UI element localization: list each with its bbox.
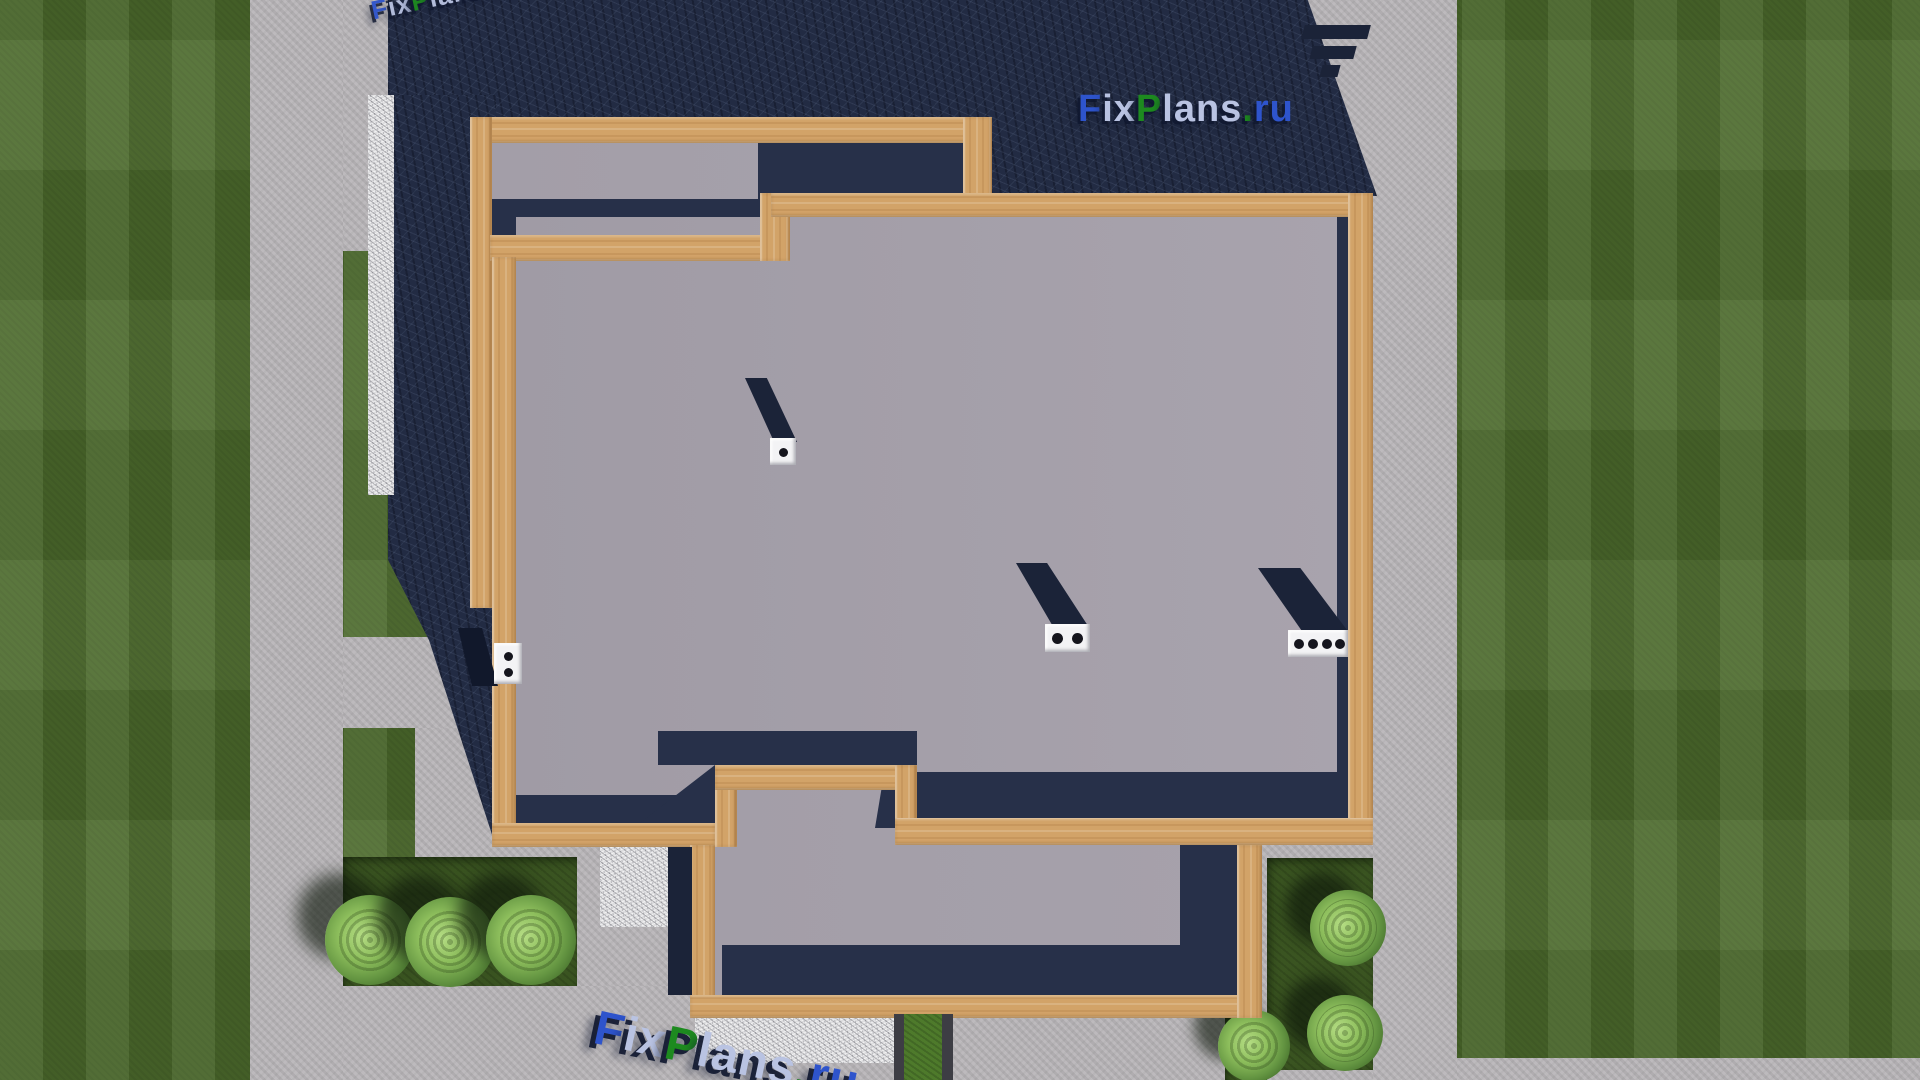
roof-vent-3 xyxy=(1288,630,1348,657)
vent-hole xyxy=(779,448,788,457)
aerial-roof-plan-render: FixPlans.ru FixPlans.ru FixPlans.ru xyxy=(0,0,1920,1080)
vent-hole xyxy=(504,652,513,661)
patio-bottom-right-strip xyxy=(1457,1058,1920,1080)
vent-hole xyxy=(1335,639,1345,649)
bed-edging xyxy=(942,1014,953,1080)
roof-vent-1 xyxy=(770,438,796,465)
bush xyxy=(1218,1010,1290,1080)
parapet-swing-east xyxy=(1237,845,1262,1018)
planted-strip xyxy=(904,1014,942,1080)
parapet-main-southeast xyxy=(895,818,1373,845)
vent-hole xyxy=(1294,639,1304,649)
vent-hole xyxy=(1072,633,1083,644)
parapet-shadow-notch xyxy=(658,731,917,765)
bush xyxy=(1310,890,1386,966)
parapet-notch-north xyxy=(715,765,917,790)
main-roof xyxy=(516,217,1348,823)
gravel-strip-southwest xyxy=(600,847,670,927)
parapet-step xyxy=(490,235,788,261)
path-right xyxy=(1373,0,1457,1080)
parapet-main-east xyxy=(1348,193,1373,845)
path-left xyxy=(250,0,343,1080)
parapet-main-north xyxy=(771,193,1373,217)
parapet-swing-west xyxy=(690,845,715,1017)
bush xyxy=(405,897,495,987)
wall-vent xyxy=(494,643,522,684)
bush xyxy=(486,895,576,985)
vent-hole xyxy=(1052,633,1063,644)
wing-roof-shadow-east xyxy=(758,143,970,199)
shadow-finger xyxy=(1319,65,1340,77)
vent-hole xyxy=(504,668,513,677)
parapet-main-west xyxy=(492,257,516,847)
parapet-main-southwest xyxy=(492,823,715,847)
bush xyxy=(1307,995,1383,1071)
vent-hole xyxy=(1322,639,1332,649)
parapet-wing-west xyxy=(470,117,492,608)
parapet-wing-north xyxy=(470,117,985,143)
parapet-shadow-southeast xyxy=(917,772,1348,818)
vent-hole xyxy=(1308,639,1318,649)
gravel-strip-west xyxy=(368,95,394,495)
shadow-finger xyxy=(1301,25,1371,39)
shadow-finger xyxy=(1309,46,1356,59)
parapet-swing-south xyxy=(690,995,1262,1018)
roof-vent-2 xyxy=(1045,624,1090,652)
swing-wall-shadow xyxy=(668,847,692,995)
bed-edging xyxy=(894,1014,904,1080)
watermark-logo: FixPlans.ru xyxy=(1078,88,1294,131)
bush xyxy=(325,895,415,985)
parapet-shadow-east xyxy=(1337,217,1348,818)
